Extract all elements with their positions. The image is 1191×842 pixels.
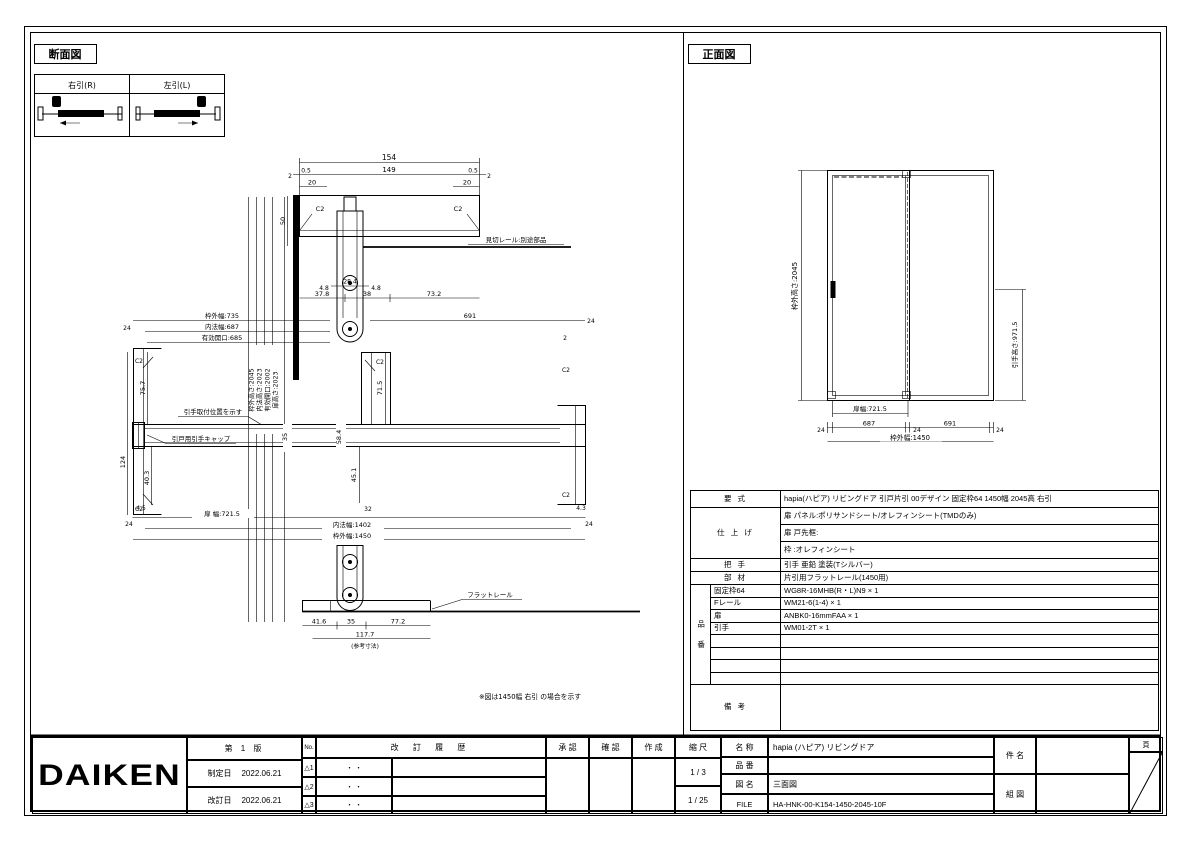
variant-left-label: 左引(L) bbox=[164, 80, 191, 90]
dim-frame-width-1450: 枠外幅:1450 bbox=[333, 531, 371, 540]
dim-2: 2 bbox=[563, 335, 567, 342]
handle-cap-note: 引戸用引手キャップ bbox=[172, 434, 231, 443]
assembly-drawing-label: 組 図 bbox=[994, 774, 1036, 814]
check-header: 確 認 bbox=[589, 737, 632, 758]
dim-door-width-721_5: 扉幅:721.5 bbox=[853, 404, 887, 413]
variant-table: 右引(R) 左引(L) bbox=[35, 75, 225, 137]
variant-right-label: 右引(R) bbox=[68, 80, 96, 90]
check-cell bbox=[589, 758, 632, 814]
revision-dots: ・ ・ bbox=[316, 758, 392, 777]
dim-28_4: 28.4 bbox=[343, 279, 357, 286]
assembly-drawing-value bbox=[1036, 774, 1129, 814]
door-height-dim: 扉高さ:2023 bbox=[271, 371, 280, 408]
dim-24: 24 bbox=[123, 325, 131, 332]
spec-remarks-label: 備 考 bbox=[691, 685, 781, 731]
dim-door-width-721_5: 扉 幅:721.5 bbox=[204, 509, 240, 518]
dim-inner-width-1402: 内法幅:1402 bbox=[333, 520, 371, 529]
dim-24: 24 bbox=[587, 318, 595, 325]
revision-desc-cell bbox=[392, 758, 546, 777]
spec-parts-label: 部 材 bbox=[691, 572, 781, 585]
established-date: 2022.06.21 bbox=[241, 769, 281, 778]
height-dimension-bundle: 枠外高さ:2045 内法高さ:2023 有効開口:2002 扉高さ:2023 bbox=[247, 197, 285, 622]
edition-cell: 第 1 版 bbox=[187, 737, 302, 760]
spec-partno-name: 扉 bbox=[711, 610, 781, 623]
scale-value-1: 1 / 3 bbox=[675, 758, 721, 786]
chamfer-label: C2 bbox=[562, 367, 570, 374]
revision-mark: △2 bbox=[302, 777, 316, 796]
dim-24: 24 bbox=[585, 521, 593, 528]
dim-691: 691 bbox=[464, 312, 476, 320]
page-cell bbox=[1129, 752, 1163, 814]
established-label: 制定日 bbox=[207, 768, 231, 779]
spec-type-value: hapia(ハピア) リビングドア 引戸片引 00デザイン 固定枠64 1450… bbox=[781, 491, 1159, 508]
revised-label: 改訂日 bbox=[207, 795, 231, 806]
top-detail: C2 C2 見切レール:別途部品 154 2 0.5 149 0.5 2 20 … bbox=[279, 153, 571, 380]
dim-inner-width-687: 内法幅:687 bbox=[205, 322, 239, 331]
established-date-cell: 制定日 2022.06.21 bbox=[187, 760, 302, 787]
flat-rail-label: フラットレール bbox=[467, 591, 513, 599]
dim-0_5: 0.5 bbox=[468, 168, 478, 175]
dim-4_5: 4.5 bbox=[136, 505, 146, 512]
dim-77_2: 77.2 bbox=[391, 618, 405, 626]
section-view-title: 断面図 bbox=[49, 47, 82, 61]
dim-4_3: 4.3 bbox=[576, 505, 586, 512]
chamfer-label: C2 bbox=[376, 359, 384, 366]
chamfer-label: C2 bbox=[316, 205, 325, 213]
revision-no-header: No. bbox=[302, 737, 316, 758]
revision-desc-cell bbox=[392, 796, 546, 814]
spec-partno-value bbox=[781, 647, 1159, 660]
scale-value-2: 1 / 25 bbox=[675, 786, 721, 814]
spec-type-label: 要 式 bbox=[691, 491, 781, 508]
dim-note: (参考寸法) bbox=[351, 642, 379, 650]
revision-desc-cell bbox=[392, 777, 546, 796]
inner-height-dim: 内法高さ:2023 bbox=[255, 368, 264, 411]
spec-partno-value: WG8R-16MHB(R・L)N9 × 1 bbox=[781, 585, 1159, 598]
revision-mark: △1 bbox=[302, 758, 316, 777]
dim-2: 2 bbox=[288, 173, 292, 180]
variant-right-schematic bbox=[38, 96, 122, 126]
drawing-name-value: 三面図 bbox=[768, 774, 994, 794]
drawing-sheet: 断面図 正面図 右引(R) 左引(L) bbox=[0, 0, 1191, 842]
dim-2: 2 bbox=[487, 173, 491, 180]
spec-partno-label: 品 番 bbox=[691, 585, 711, 685]
spec-partno-name bbox=[711, 660, 781, 673]
opening-height-dim: 有効開口:2002 bbox=[263, 368, 272, 411]
spec-finish-panel: 扉 パネル:ポリサンドシート/オレフィンシート(TMDのみ) bbox=[781, 508, 1159, 525]
spec-partno-name: Fレール bbox=[711, 597, 781, 610]
dim-20: 20 bbox=[463, 179, 471, 187]
approve-header: 承 認 bbox=[546, 737, 589, 758]
company-logo-cell: DAIKEN bbox=[32, 737, 187, 814]
file-value: HA-HNK-00-K154-1450-2045-10F bbox=[768, 794, 994, 814]
spec-partno-value: ANBK0-16mmFAA × 1 bbox=[781, 610, 1159, 623]
chamfer-label: C2 bbox=[454, 205, 463, 213]
variant-left-schematic bbox=[136, 96, 220, 126]
dim-32: 32 bbox=[364, 506, 372, 513]
frame-height-dim: 枠外高さ:2045 bbox=[247, 368, 256, 411]
dim-frame-width-1450: 枠外幅:1450 bbox=[890, 433, 930, 442]
spec-partno-value bbox=[781, 635, 1159, 648]
door-handle bbox=[831, 281, 836, 298]
name-value: hapia (ハピア) リビングドア bbox=[768, 737, 994, 757]
dim-0_5: 0.5 bbox=[301, 168, 311, 175]
name-label: 名 称 bbox=[721, 737, 768, 757]
spec-handle-value: 引手 亜鉛 塗装(Tシルバー) bbox=[781, 559, 1159, 572]
revision-history-header: 改 訂 履 歴 bbox=[316, 737, 546, 758]
dim-handle-height-971_5: 引手高さ:971.5 bbox=[1010, 322, 1019, 369]
dim-40_3: 40.3 bbox=[143, 471, 151, 485]
dim-41_6: 41.6 bbox=[312, 618, 326, 626]
dim-4_8: 4.8 bbox=[371, 285, 381, 292]
drawing-note: ※図は1450幅 右引 の場合を示す bbox=[479, 692, 581, 701]
front-view-title: 正面図 bbox=[703, 47, 736, 61]
dim-24: 24 bbox=[996, 427, 1004, 434]
dim-frame-width-735: 枠外幅:735 bbox=[205, 311, 239, 320]
spec-partno-name: 固定枠64 bbox=[711, 585, 781, 598]
rail-note-label: 見切レール:別途部品 bbox=[486, 235, 547, 244]
front-view: 枠外高さ:2045 引手高さ:971.5 扉幅:721.5 24 687 24 … bbox=[790, 171, 1026, 443]
dim-35: 35 bbox=[281, 433, 289, 441]
spec-remarks-value bbox=[781, 685, 1159, 731]
view-title-boxes: 断面図 正面図 bbox=[35, 45, 751, 64]
dim-75_7: 75.7 bbox=[139, 381, 147, 395]
spec-partno-value bbox=[781, 672, 1159, 685]
dim-117_7: 117.7 bbox=[356, 631, 375, 639]
handle-position-note: 引手取付位置を示す bbox=[184, 407, 243, 416]
create-header: 作 成 bbox=[632, 737, 675, 758]
chamfer-label: C2 bbox=[562, 492, 570, 499]
page-label: 頁 bbox=[1129, 737, 1163, 752]
revised-date-cell: 改訂日 2022.06.21 bbox=[187, 787, 302, 814]
revision-dots: ・ ・ bbox=[316, 777, 392, 796]
spec-partno-name: 引手 bbox=[711, 622, 781, 635]
spec-finish-frame: 枠 :オレフィンシート bbox=[781, 542, 1159, 559]
page-diagonal-line bbox=[1130, 753, 1162, 813]
dim-73_2: 73.2 bbox=[427, 290, 441, 298]
product-number-value bbox=[768, 757, 994, 774]
product-number-label: 品 番 bbox=[721, 757, 768, 774]
dim-154: 154 bbox=[382, 153, 397, 162]
dim-124: 124 bbox=[119, 456, 127, 468]
project-name-label: 件 名 bbox=[994, 737, 1036, 774]
spec-parts-value: 片引用フラットレール(1450用) bbox=[781, 572, 1159, 585]
dim-frame-height-2045: 枠外高さ:2045 bbox=[790, 262, 799, 310]
dim-35: 35 bbox=[347, 618, 355, 626]
project-name-value bbox=[1036, 737, 1129, 774]
spec-finish-label: 仕 上 げ bbox=[691, 508, 781, 559]
drawing-name-label: 図 名 bbox=[721, 774, 768, 794]
dim-37_8: 37.8 bbox=[315, 290, 329, 298]
title-block: DAIKEN 第 1 版 制定日 2022.06.21 改訂日 2022.06.… bbox=[30, 735, 1161, 812]
spec-partno-name bbox=[711, 672, 781, 685]
dim-opening-685: 有効開口:685 bbox=[202, 333, 243, 342]
revised-date: 2022.06.21 bbox=[241, 796, 281, 805]
create-cell bbox=[632, 758, 675, 814]
spec-partno-value bbox=[781, 660, 1159, 673]
approve-cell bbox=[546, 758, 589, 814]
spec-handle-label: 把 手 bbox=[691, 559, 781, 572]
dim-149: 149 bbox=[382, 166, 395, 174]
dim-24: 24 bbox=[125, 521, 133, 528]
spec-table: 要 式 hapia(ハピア) リビングドア 引戸片引 00デザイン 固定枠64 … bbox=[690, 490, 1159, 731]
daiken-logo: DAIKEN bbox=[38, 759, 181, 793]
mid-section: C2 C2 C2 C2 C2 枠外幅:735 内法幅:687 有効開口:685 … bbox=[119, 311, 595, 540]
dim-687: 687 bbox=[863, 420, 875, 428]
spec-partno-name bbox=[711, 647, 781, 660]
bottom-detail: フラットレール 41.6 35 77.2 117.7 (参考寸法) bbox=[302, 546, 640, 651]
scale-header: 縮 尺 bbox=[675, 737, 721, 758]
spec-partno-value: WM01-2T × 1 bbox=[781, 622, 1159, 635]
spec-partno-name bbox=[711, 635, 781, 648]
spec-finish-edge: 扉 戸先框: bbox=[781, 525, 1159, 542]
dim-24: 24 bbox=[817, 427, 825, 434]
dim-50: 50 bbox=[279, 217, 287, 225]
file-label: FILE bbox=[721, 794, 768, 814]
dim-71_5: 71.5 bbox=[376, 381, 384, 395]
revision-mark: △3 bbox=[302, 796, 316, 814]
dim-58_4: 58.4 bbox=[335, 430, 343, 444]
dim-45_1: 45.1 bbox=[350, 468, 358, 482]
revision-dots: ・ ・ bbox=[316, 796, 392, 814]
dim-20: 20 bbox=[308, 179, 316, 187]
chamfer-label: C2 bbox=[135, 358, 143, 365]
spec-partno-value: WM21-6(1-4) × 1 bbox=[781, 597, 1159, 610]
dim-38: 38 bbox=[363, 290, 371, 298]
dim-691: 691 bbox=[944, 420, 956, 428]
